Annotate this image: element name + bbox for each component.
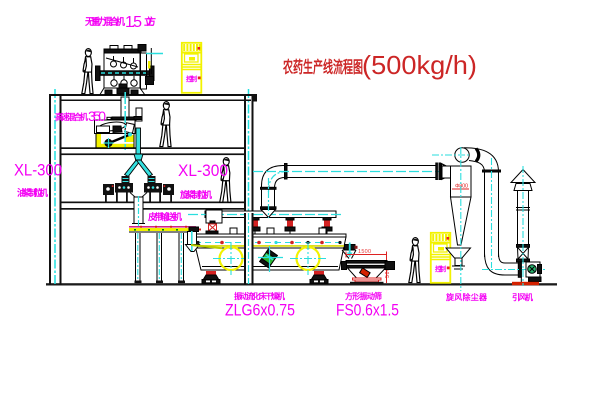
svg-text:立方: 立方 xyxy=(144,16,156,28)
svg-text:FS0.6x1.5: FS0.6x1.5 xyxy=(336,301,399,320)
svg-text:(500kg/h): (500kg/h) xyxy=(362,50,477,80)
svg-text:皮带输送机: 皮带输送机 xyxy=(147,211,182,222)
svg-text:方形振动筛: 方形振动筛 xyxy=(345,291,382,301)
svg-text:XL-300: XL-300 xyxy=(178,162,228,180)
svg-text:高速混合机: 高速混合机 xyxy=(55,112,88,122)
svg-text:旋桨制粒机: 旋桨制粒机 xyxy=(179,189,212,200)
svg-text:无重力混合机: 无重力混合机 xyxy=(84,16,125,28)
svg-text:旋风除尘器: 旋风除尘器 xyxy=(445,292,488,302)
svg-text:1500: 1500 xyxy=(358,249,371,255)
svg-text:1.5: 1.5 xyxy=(125,14,142,31)
svg-text:XL-300: XL-300 xyxy=(14,162,62,180)
svg-text:引风机: 引风机 xyxy=(512,292,533,302)
svg-text:振动流化床干燥机: 振动流化床干燥机 xyxy=(234,291,285,301)
svg-text:ZLG6x0.75: ZLG6x0.75 xyxy=(225,301,295,320)
svg-text:油桨制粒机: 油桨制粒机 xyxy=(17,187,48,198)
svg-text:350: 350 xyxy=(88,108,106,124)
svg-text:农药生产线流程图: 农药生产线流程图 xyxy=(282,58,363,77)
